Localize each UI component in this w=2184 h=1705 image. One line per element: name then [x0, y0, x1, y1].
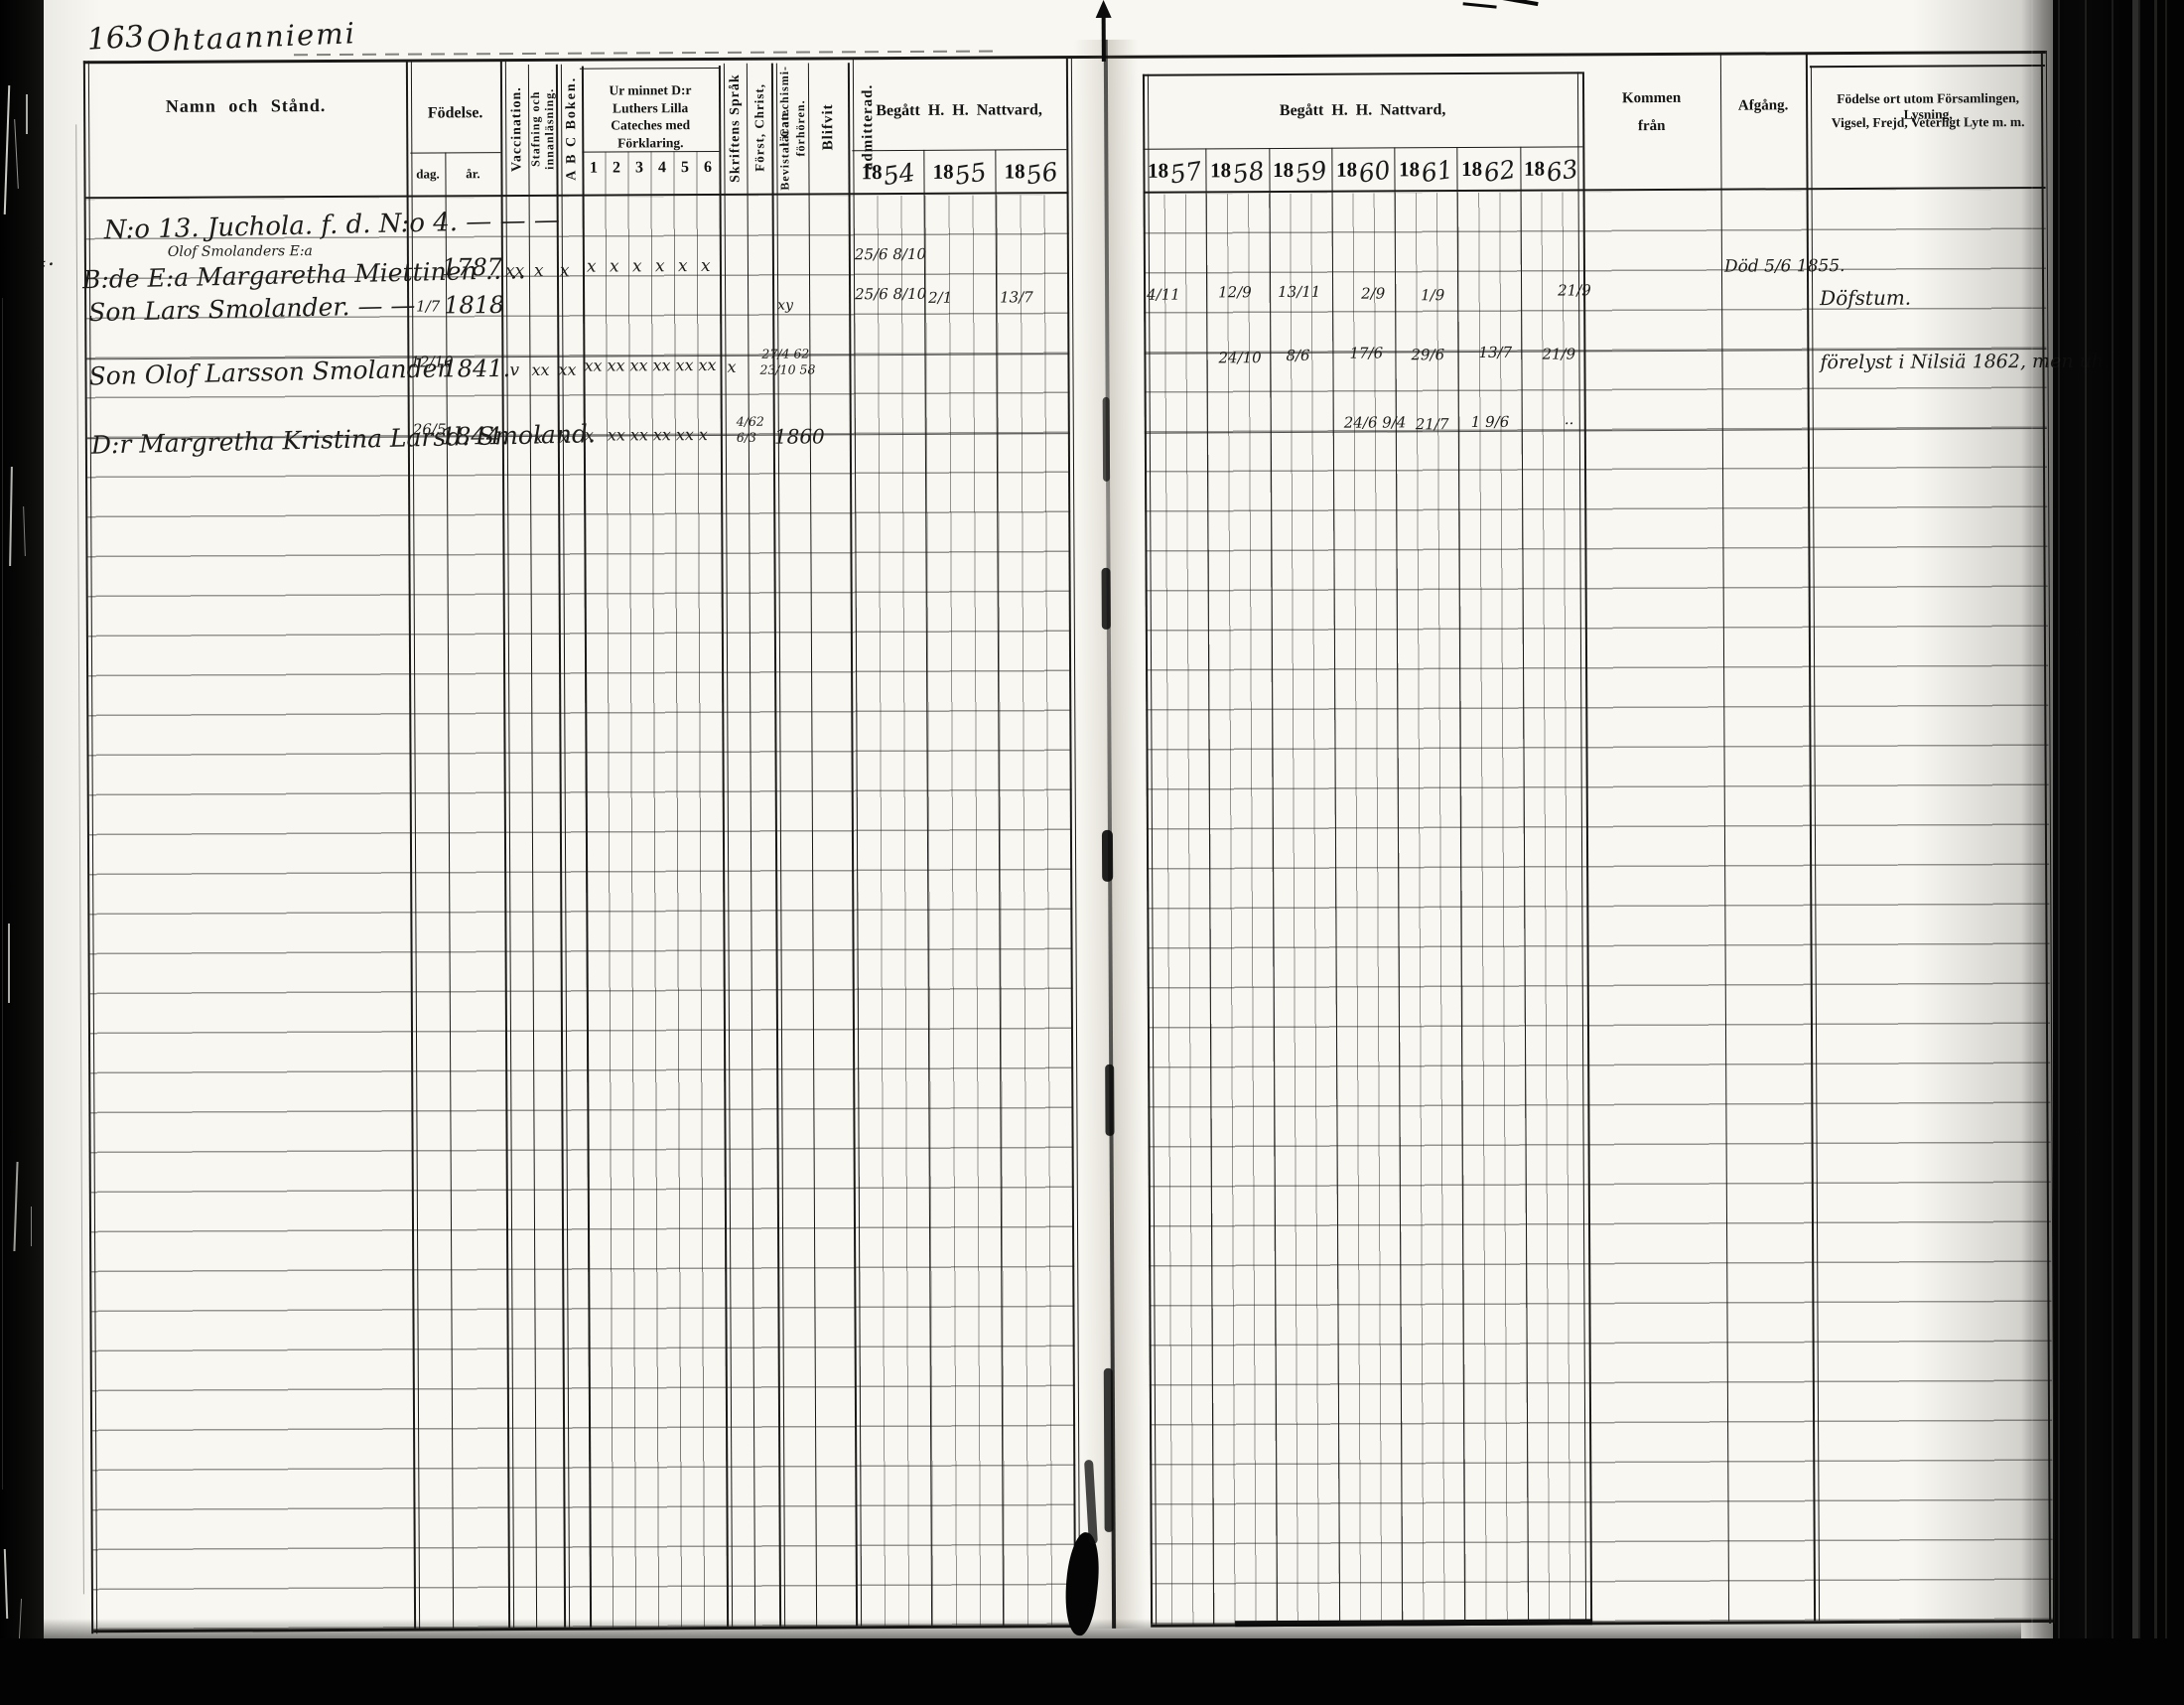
scan-artifact	[31, 1207, 32, 1246]
stafning-mark: x	[534, 261, 544, 281]
cateches-mark: xx	[653, 425, 671, 444]
communion-1855: 2/1	[928, 289, 952, 307]
cateches-col-3: 3	[627, 159, 650, 177]
cateches-mark: xx	[675, 355, 693, 374]
register-sheet: 163 Ohtaanniemi 4. Namn och Stånd. Födel…	[0, 0, 2184, 1705]
column-header-stafning-line2: innanläsning.	[542, 65, 557, 194]
cateches-col-1: 1	[582, 160, 605, 178]
cateches-mark: xx	[584, 356, 602, 375]
communion-1857: 4/11	[1147, 286, 1180, 304]
year-script: 62	[1481, 154, 1517, 187]
year-script: 63	[1544, 154, 1579, 187]
year-header-1860: 18 60	[1331, 149, 1394, 189]
communion-1860: 17/6	[1349, 344, 1383, 361]
year-header-1863: 18 63	[1519, 148, 1581, 188]
fold-smudge	[1102, 568, 1111, 630]
column-header-abc: A B C Boken.	[561, 65, 583, 194]
year-script: 60	[1356, 155, 1392, 188]
year-printed: 18	[1461, 156, 1482, 181]
birth-year: 1818	[444, 291, 504, 319]
cateches-mark: xx	[608, 425, 625, 444]
scanned-parish-register: 163 Ohtaanniemi 4. Namn och Stånd. Födel…	[0, 0, 2184, 1705]
cateches-mark: x	[587, 257, 597, 277]
page-title-script: Ohtaanniemi	[146, 16, 356, 58]
birth-year: 1844.	[441, 422, 509, 450]
year-header-1859: 18 59	[1268, 150, 1330, 190]
column-header-ar: år.	[445, 166, 500, 182]
year-script: 54	[882, 157, 917, 190]
column-header-skriftens: Skriftens Språk	[724, 64, 748, 193]
cateches-mark: x	[678, 256, 688, 276]
column-header-blifvit: Blifvit admitterad.	[808, 63, 849, 192]
scan-artifact	[2, 298, 3, 1490]
abc-mark: x	[560, 428, 569, 447]
column-header-namn: Namn och Stånd.	[85, 95, 406, 118]
cateches-mark: xx	[698, 355, 716, 374]
year-printed: 18	[1336, 157, 1357, 182]
stafning-mark: x	[534, 428, 543, 447]
cateches-mark: x	[632, 256, 642, 276]
afgang-note: Död 5/6 1855.	[1724, 256, 1845, 277]
communion-1862: 1 9/6	[1471, 413, 1510, 431]
year-script: 59	[1293, 155, 1328, 188]
cateches-col-4: 4	[650, 159, 673, 177]
bevistat-date-1: 4/62	[737, 415, 764, 430]
grid-line	[75, 124, 84, 1594]
communion-1859: 8/6	[1286, 347, 1309, 364]
column-header-kommen-line1: Kommen	[1582, 90, 1720, 108]
year-script: 61	[1419, 155, 1454, 188]
cateches-mark: xx	[652, 355, 670, 374]
bevistat-mark: xy	[777, 298, 793, 314]
communion-1861: 1/9	[1421, 286, 1444, 304]
skriftens-mark: x	[727, 357, 736, 376]
bevistat-date-1: 27/4 62	[761, 347, 809, 361]
communion-1860: 24/6 9/4	[1344, 413, 1407, 431]
communion-1861: 29/6	[1411, 346, 1444, 363]
scanner-edge-right	[2021, 0, 2184, 1705]
year-printed: 18	[861, 160, 882, 185]
year-header-1858: 18 58	[1205, 150, 1268, 190]
year-printed: 18	[1524, 156, 1545, 181]
scan-artifact	[13, 1162, 18, 1251]
cateches-mark: x	[585, 426, 594, 445]
fold-smudge	[1103, 397, 1110, 482]
vaccination-mark: xx	[505, 261, 524, 281]
scanner-edge-bottom	[0, 1638, 2184, 1705]
vaccination-mark: v	[509, 360, 519, 380]
scan-streaks	[2021, 0, 2184, 1705]
year-printed: 18	[932, 159, 953, 184]
abc-mark: x	[560, 261, 570, 281]
stafning-mark: xx	[531, 360, 549, 379]
scan-artifact	[4, 85, 11, 214]
communion-1858: 12/9	[1218, 283, 1252, 301]
column-header-nattvard-right: Begått H. H. Nattvard,	[1143, 100, 1582, 120]
scan-artifact	[14, 119, 19, 189]
scan-artifact	[2132, 0, 2138, 1705]
grid-line	[580, 68, 721, 70]
scan-artifact	[26, 94, 28, 134]
nattvard-right-subcolumns	[1144, 192, 1591, 1624]
column-header-forst: Först, Christ, läran.	[747, 64, 772, 193]
year-script: 55	[953, 157, 989, 190]
column-header-cateches: Ur minnet D:r Luthers Lilla Cateches med…	[586, 81, 715, 152]
communion-1861: 21/7	[1416, 415, 1449, 433]
column-header-vaccination: Vaccination.	[505, 65, 529, 194]
scan-artifact	[19, 1599, 22, 1638]
communion-1854: 25/6 8/10	[855, 245, 926, 263]
bevistat-date-2: 6/3	[737, 431, 756, 445]
year-header-1856: 18 56	[995, 151, 1066, 191]
cateches-mark: xx	[629, 355, 647, 374]
communion-1854: 25/6 8/10	[855, 285, 926, 303]
cateches-mark: x	[655, 256, 665, 276]
year-printed: 18	[1004, 159, 1024, 184]
nattvard-left-subcolumns	[854, 195, 1075, 1626]
communion-1862: 13/7	[1478, 344, 1512, 361]
column-header-bevistat-line2: förhören.	[792, 63, 809, 192]
year-script: 58	[1230, 156, 1266, 189]
column-header-dag: dag.	[410, 166, 445, 182]
fold-smudge	[1104, 1368, 1114, 1532]
communion-1856: 13/7	[1000, 288, 1033, 306]
year-script: 56	[1024, 157, 1060, 190]
communion-1859: 13/11	[1278, 283, 1320, 301]
year-printed: 18	[1210, 158, 1231, 183]
communion-1863: 21/9	[1542, 345, 1575, 362]
cateches-mark: x	[699, 425, 708, 444]
birth-day: 1/7	[416, 297, 440, 315]
scan-artifact	[4, 1549, 8, 1619]
entry-note-above: Olof Smolanders E:a	[168, 243, 313, 260]
cateches-mark: x	[701, 256, 711, 276]
cateches-col-5: 5	[673, 159, 696, 177]
pen-scratch	[1463, 2, 1497, 8]
year-script: 57	[1167, 156, 1203, 189]
page-number: 163	[86, 20, 145, 58]
grid-line	[1143, 71, 1582, 75]
year-printed: 18	[1148, 158, 1168, 183]
remarks-note: Döfstum.	[1820, 286, 1911, 310]
fold-smudge	[1105, 1065, 1114, 1136]
pen-scratch	[1499, 0, 1539, 6]
bevistat-date-2: 23/10 58	[759, 362, 815, 377]
year-header-1855: 18 55	[923, 152, 995, 192]
fold-smudge	[1102, 830, 1113, 882]
communion-1860: 2/9	[1361, 284, 1385, 302]
cateches-mark: xx	[630, 425, 648, 444]
year-header-1861: 18 61	[1394, 149, 1456, 189]
year-header-1857: 18 57	[1143, 150, 1205, 190]
cateches-mark: x	[610, 256, 619, 276]
column-header-kommen-line2: från	[1582, 118, 1720, 136]
cateches-col-2: 2	[605, 159, 627, 177]
column-header-afgang: Afgång.	[1720, 97, 1806, 114]
communion-1863: ··	[1565, 414, 1574, 432]
birth-year: 1841.	[442, 355, 510, 382]
scan-artifact	[8, 924, 10, 1003]
grid-line	[1810, 65, 2045, 68]
communion-1858: 24/10	[1218, 349, 1261, 366]
scanner-edge-left	[0, 0, 44, 1705]
column-header-nattvard-left: Begått H. H. Nattvard,	[852, 101, 1066, 120]
scan-artifact	[23, 506, 26, 556]
fold-arrow-tail	[1102, 14, 1106, 62]
title-dash-line	[294, 50, 999, 56]
scan-artifact	[9, 467, 13, 566]
cateches-col-6: 6	[696, 159, 719, 177]
year-printed: 18	[1273, 157, 1294, 182]
scan-artifact	[2154, 0, 2157, 1705]
year-header-1862: 18 62	[1456, 149, 1519, 189]
abc-mark: xx	[558, 360, 576, 379]
column-header-notes-line2: Vigsel, Frejd, Veterligt Lyte m. m.	[1813, 114, 2043, 131]
cateches-mark: xx	[607, 355, 624, 374]
cateches-mark: xx	[676, 425, 694, 444]
column-header-fodelse: Födelse.	[410, 104, 500, 122]
communion-1863: 21/9	[1558, 281, 1591, 299]
year-printed: 18	[1399, 157, 1420, 182]
grid-line	[410, 152, 500, 153]
column-header-bevistat-line1: Bevistat Catechismi-	[776, 64, 793, 193]
year-header-1854: 18 54	[852, 152, 923, 192]
birth-year: 1787	[442, 253, 502, 281]
column-header-stafning-line1: Stafning och	[528, 65, 543, 194]
blifvit-admitterad-year: 1860	[774, 424, 825, 448]
